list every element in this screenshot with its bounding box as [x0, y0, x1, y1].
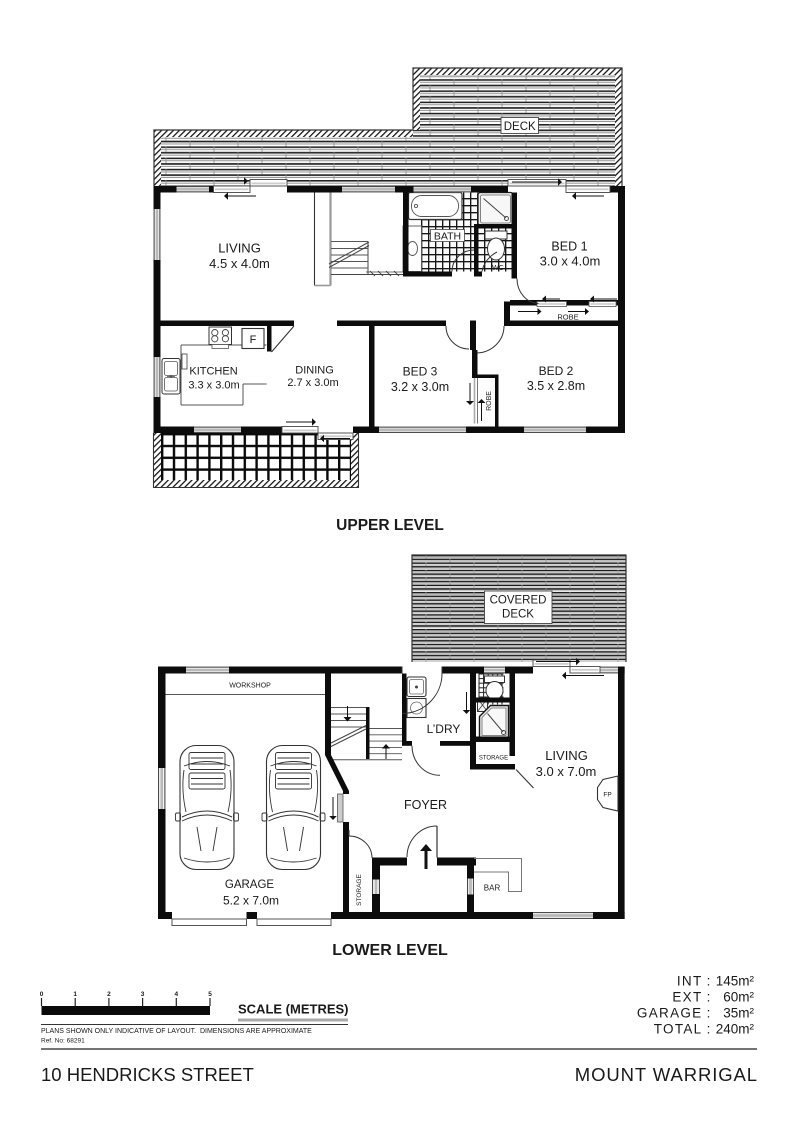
svg-text:35m²: 35m²	[723, 1006, 754, 1021]
svg-text:Ref. No: 68291: Ref. No: 68291	[41, 1038, 85, 1045]
svg-text:GARAGE: GARAGE	[225, 879, 275, 891]
svg-text:EXT: EXT	[672, 990, 702, 1005]
svg-text:ROBE: ROBE	[557, 313, 578, 322]
svg-text:3.0 x 7.0m: 3.0 x 7.0m	[536, 764, 597, 779]
svg-text:GARAGE: GARAGE	[637, 1006, 703, 1021]
svg-text:60m²: 60m²	[723, 990, 754, 1005]
svg-text:TOTAL: TOTAL	[654, 1022, 703, 1037]
svg-text:3.3 x 3.0m: 3.3 x 3.0m	[188, 380, 239, 392]
svg-text:BATH: BATH	[434, 231, 461, 243]
svg-text:UPPER LEVEL: UPPER LEVEL	[336, 517, 444, 534]
svg-text:3: 3	[141, 991, 145, 998]
svg-text:BAR: BAR	[484, 884, 501, 893]
svg-text:4.5 x 4.0m: 4.5 x 4.0m	[209, 256, 270, 271]
svg-text:3.2 x 3.0m: 3.2 x 3.0m	[391, 380, 449, 394]
svg-text:STORAGE: STORAGE	[479, 756, 508, 762]
svg-text:5: 5	[208, 991, 212, 998]
svg-text::: :	[707, 1022, 711, 1037]
svg-text:4: 4	[174, 991, 178, 998]
svg-text:L’DRY: L’DRY	[427, 722, 461, 736]
svg-text:BED 1: BED 1	[551, 240, 587, 254]
svg-text:5.2 x 7.0m: 5.2 x 7.0m	[223, 894, 279, 908]
svg-text:F: F	[250, 334, 257, 346]
svg-text:COVERED: COVERED	[490, 595, 547, 607]
svg-text:0: 0	[40, 991, 44, 998]
svg-text:2.7 x 3.0m: 2.7 x 3.0m	[287, 377, 338, 389]
svg-text:1: 1	[73, 991, 77, 998]
svg-text:3.5 x 2.8m: 3.5 x 2.8m	[527, 379, 585, 393]
svg-text:DECK: DECK	[504, 121, 536, 133]
svg-text:SCALE (METRES): SCALE (METRES)	[238, 1002, 349, 1017]
svg-text:FOYER: FOYER	[404, 798, 447, 812]
svg-text:LIVING: LIVING	[545, 748, 588, 763]
svg-text:MOUNT WARRIGAL: MOUNT WARRIGAL	[575, 1064, 758, 1085]
svg-text:ROBE: ROBE	[486, 391, 493, 411]
svg-text:PLANS SHOWN ONLY INDICATIVE OF: PLANS SHOWN ONLY INDICATIVE OF LAYOUT. D…	[41, 1028, 312, 1035]
svg-text:10 HENDRICKS STREET: 10 HENDRICKS STREET	[41, 1064, 254, 1085]
svg-text:LOWER LEVEL: LOWER LEVEL	[332, 942, 448, 959]
svg-text::: :	[707, 990, 711, 1005]
svg-text:FP: FP	[603, 792, 611, 799]
svg-text::: :	[707, 974, 711, 989]
svg-text:DINING: DINING	[295, 365, 334, 377]
svg-text:DECK: DECK	[502, 609, 534, 621]
svg-text:LIVING: LIVING	[218, 241, 261, 256]
svg-text:STORAGE: STORAGE	[356, 874, 363, 906]
svg-text:BED 3: BED 3	[403, 365, 438, 379]
svg-text:2: 2	[107, 991, 111, 998]
svg-text:145m²: 145m²	[716, 974, 755, 989]
svg-text:240m²: 240m²	[716, 1022, 755, 1037]
svg-text:3.0 x 4.0m: 3.0 x 4.0m	[540, 254, 601, 269]
svg-text:INT: INT	[677, 974, 703, 989]
svg-text:KITCHEN: KITCHEN	[189, 366, 237, 378]
svg-text:WORKSHOP: WORKSHOP	[229, 683, 271, 690]
svg-text::: :	[707, 1006, 711, 1021]
svg-text:WC: WC	[492, 265, 504, 272]
svg-text:BED 2: BED 2	[539, 364, 574, 378]
